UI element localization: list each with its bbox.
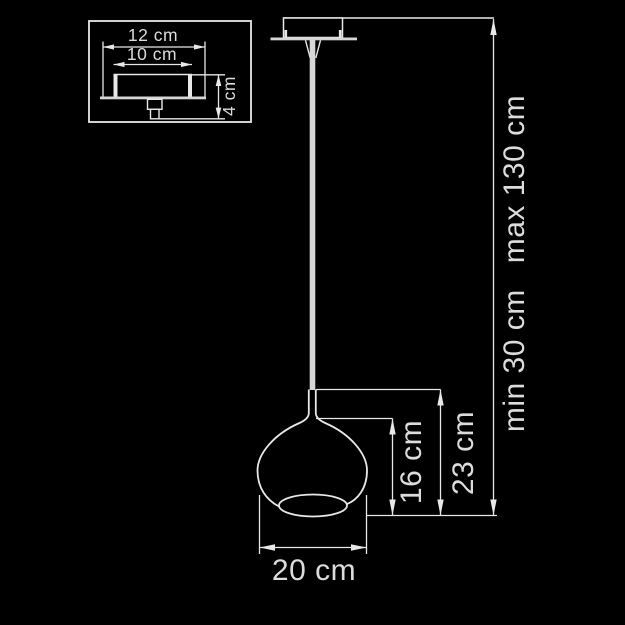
dim-label-10cm: 10 cm	[92, 46, 212, 64]
dim-label-16cm: 16 cm	[397, 412, 427, 512]
suspension-cord	[310, 40, 316, 390]
pendant-lamp-dimension-drawing: 12 cm 10 cm 4 cm 20 cm 16 cm 23 cm min 3…	[0, 0, 625, 625]
ceiling-plate	[271, 38, 358, 41]
dim-label-suspension: min 30 cm max 130 cm	[499, 93, 530, 434]
dim-label-12cm: 12 cm	[93, 27, 213, 45]
dim-label-23cm: 23 cm	[449, 403, 479, 503]
dim-16cm-lines	[316, 419, 396, 516]
dim-label-4cm: 4 cm	[221, 61, 239, 131]
technical-drawing-svg	[0, 0, 625, 625]
dim-label-20cm: 20 cm	[234, 556, 394, 586]
dim-label-suspension-min: min 30 cm	[500, 289, 530, 432]
shade-outline	[258, 390, 368, 517]
shade-rim	[279, 495, 347, 517]
dim-label-suspension-max: max 130 cm	[500, 95, 530, 263]
canopy-outline	[284, 18, 343, 38]
canopy-detail-shape	[100, 75, 206, 119]
cord-grip-detail	[148, 99, 163, 109]
